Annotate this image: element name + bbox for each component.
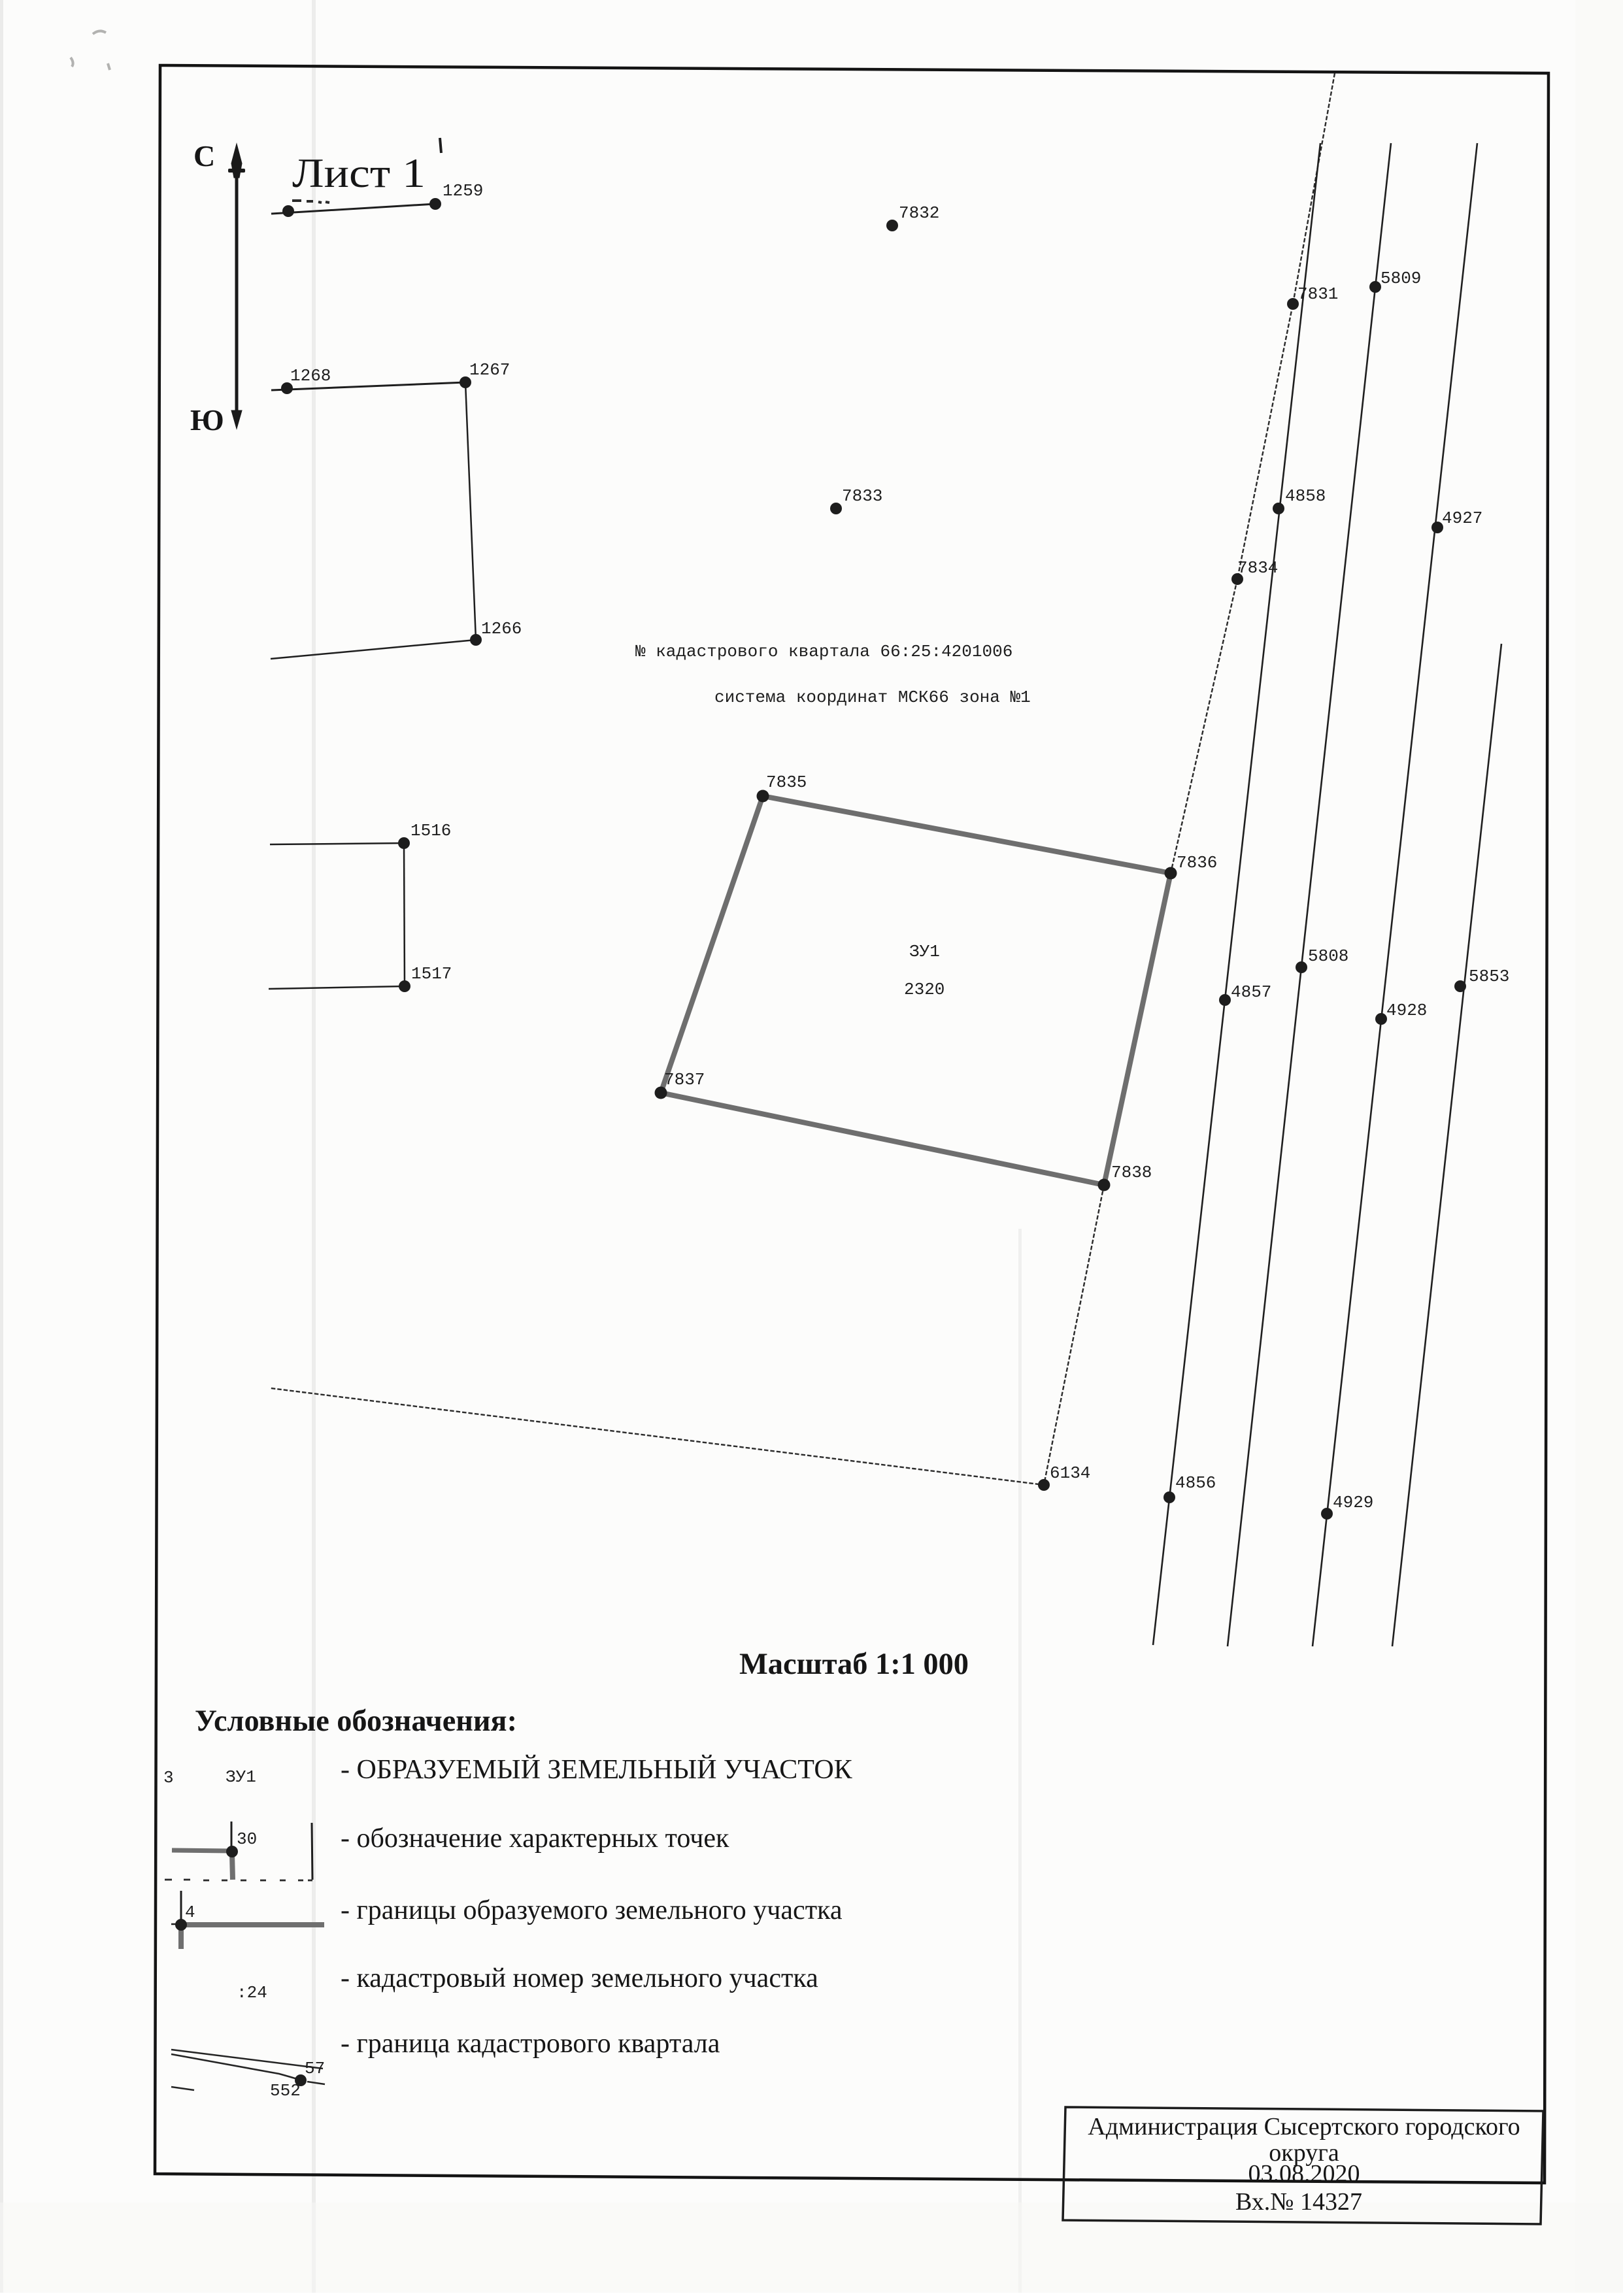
svg-text:система координат МСК66 зона №: система координат МСК66 зона №1 (714, 688, 1031, 707)
svg-text:4929: 4929 (1333, 1493, 1373, 1512)
svg-text:7832: 7832 (899, 203, 939, 223)
svg-text:552: 552 (270, 2081, 301, 2101)
svg-text:4857: 4857 (1231, 982, 1271, 1002)
svg-text:6134: 6134 (1050, 1463, 1090, 1483)
svg-text:С: С (193, 139, 215, 173)
svg-text:57: 57 (305, 2059, 325, 2078)
svg-text:- граница кадастрового квартал: - граница кадастрового квартала (341, 2029, 720, 2059)
svg-text:4: 4 (185, 1903, 195, 1922)
svg-text:2320: 2320 (904, 980, 945, 999)
svg-text:7834: 7834 (1237, 558, 1278, 578)
svg-text:1268: 1268 (290, 366, 331, 386)
svg-text:Условные обозначения:: Условные обозначения: (195, 1704, 517, 1738)
svg-text:5809: 5809 (1380, 269, 1421, 288)
svg-text:7835: 7835 (766, 773, 807, 792)
svg-text:5853: 5853 (1469, 967, 1509, 986)
svg-text:4856: 4856 (1175, 1473, 1216, 1493)
svg-text:Администрация Сысертского горо: Администрация Сысертского городского (1088, 2113, 1520, 2140)
svg-text:3: 3 (163, 1768, 174, 1788)
svg-text::24: :24 (237, 1983, 267, 2003)
svg-text:Лист 1: Лист 1 (292, 150, 426, 196)
svg-text:7833: 7833 (842, 486, 882, 506)
svg-text:30: 30 (237, 1829, 257, 1849)
svg-text:№ кадастрового квартала 66:25:: № кадастрового квартала 66:25:4201006 (635, 642, 1012, 661)
svg-text:4927: 4927 (1442, 508, 1482, 528)
svg-text:ЗУ1: ЗУ1 (226, 1767, 256, 1787)
svg-text:1259: 1259 (443, 181, 483, 201)
svg-text:Масштаб 1:1 000: Масштаб 1:1 000 (739, 1647, 969, 1681)
svg-text:ЗУ1: ЗУ1 (909, 942, 940, 961)
svg-text:- кадастровый номер земельного: - кадастровый номер земельного участка (341, 1963, 818, 1993)
svg-text:7837: 7837 (664, 1070, 705, 1090)
svg-text:7831: 7831 (1297, 284, 1338, 304)
svg-text:7838: 7838 (1111, 1163, 1152, 1182)
svg-text:- границы образуемого земельно: - границы образуемого земельного участка (341, 1895, 843, 1925)
svg-text:- ОБРАЗУЕМЫЙ ЗЕМЕЛЬНЫЙ УЧАСТОК: - ОБРАЗУЕМЫЙ ЗЕМЕЛЬНЫЙ УЧАСТОК (341, 1755, 853, 1785)
svg-text:7836: 7836 (1177, 853, 1217, 873)
svg-text:1517: 1517 (411, 964, 452, 984)
svg-text:1266: 1266 (481, 619, 522, 639)
svg-text:Вх.№ 14327: Вх.№ 14327 (1235, 2188, 1362, 2216)
svg-text:4928: 4928 (1386, 1001, 1427, 1020)
svg-text:- обозначение характерных точе: - обозначение характерных точек (341, 1823, 729, 1854)
svg-text:5808: 5808 (1308, 946, 1348, 966)
svg-text:Ю: Ю (190, 403, 224, 437)
svg-text:1267: 1267 (469, 360, 510, 380)
svg-text:03.08.2020: 03.08.2020 (1248, 2160, 1360, 2188)
svg-text:4858: 4858 (1285, 486, 1326, 506)
svg-text:1516: 1516 (410, 821, 451, 840)
